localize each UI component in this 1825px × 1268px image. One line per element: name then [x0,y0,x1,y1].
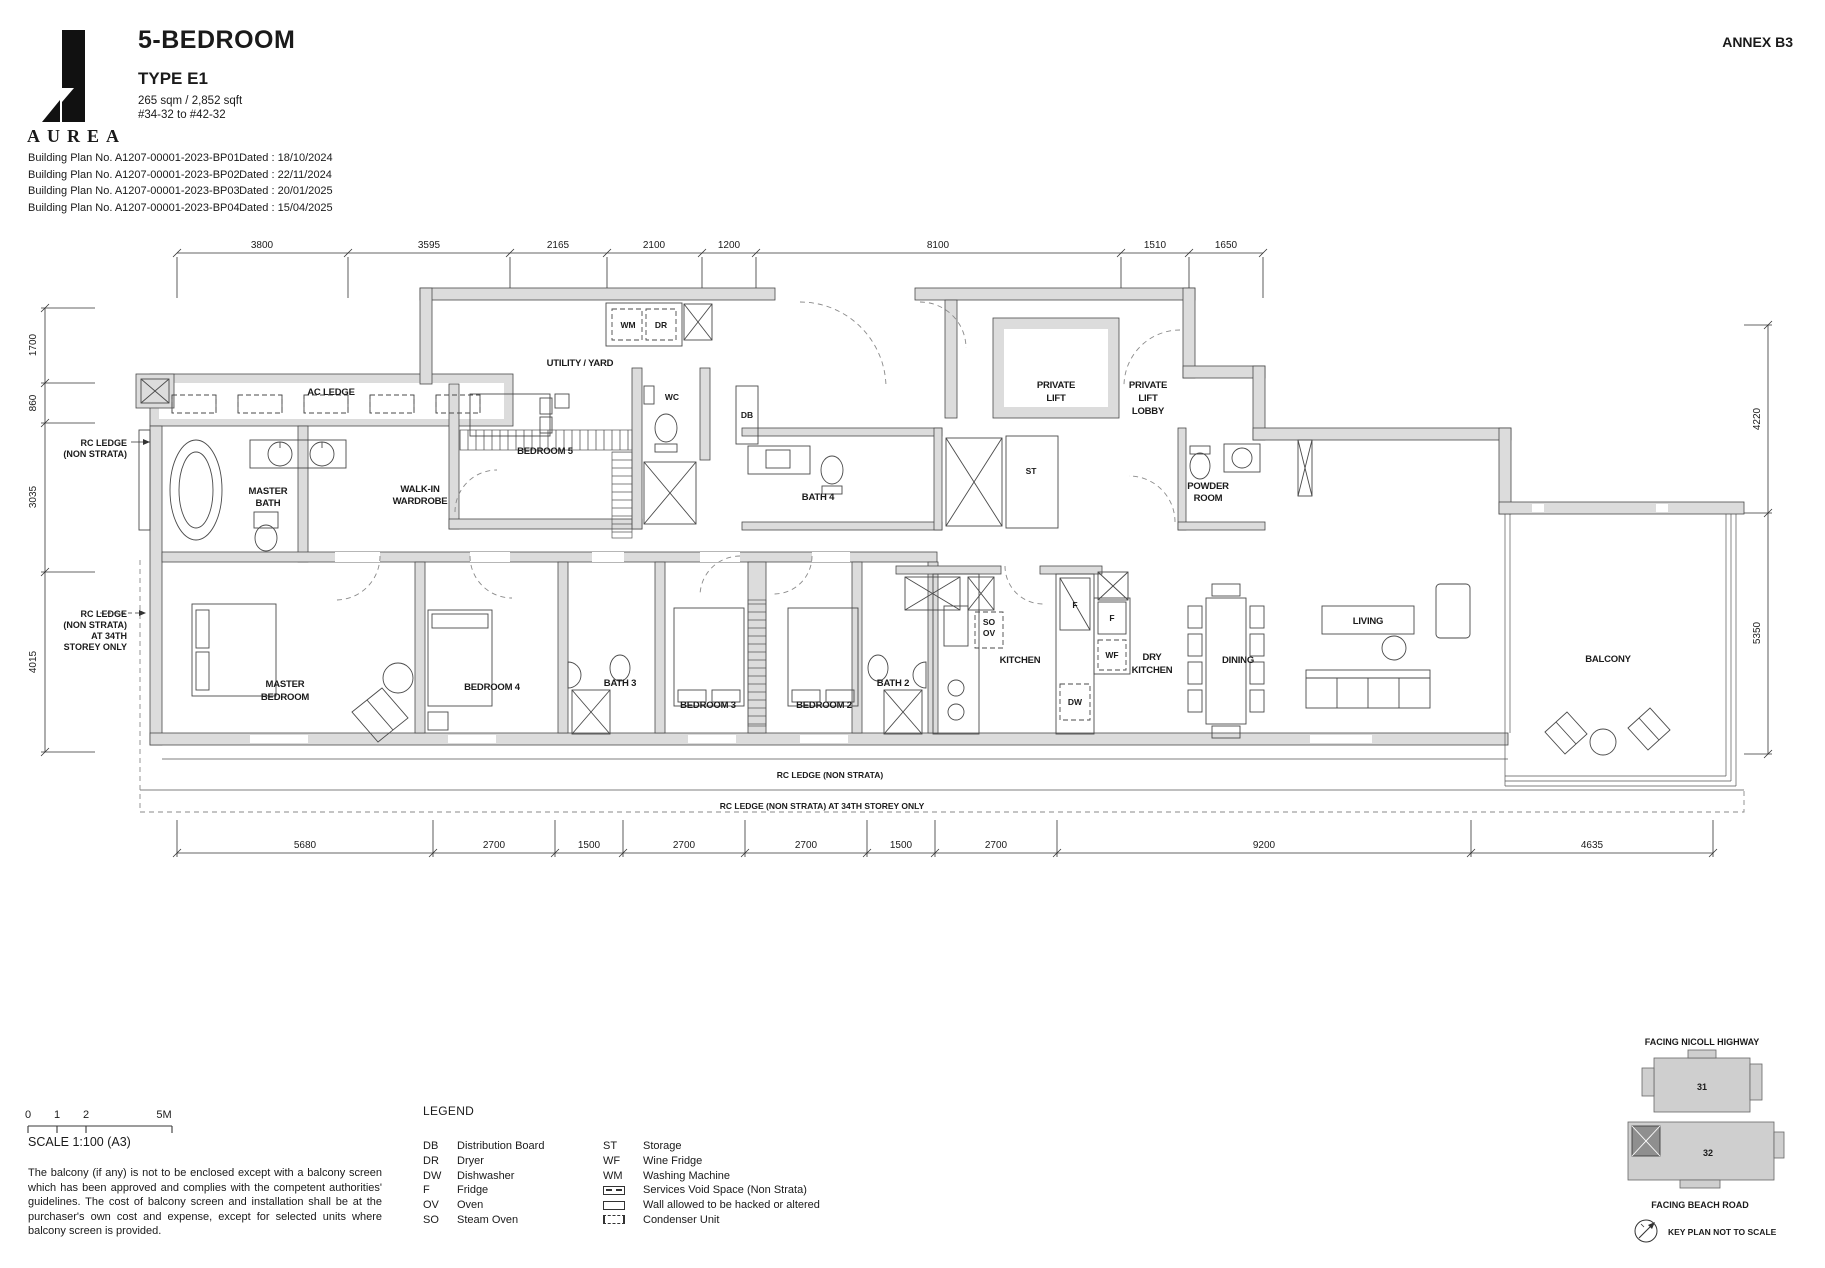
dim-bottom: 2700 [985,840,1008,851]
svg-text:(NON STRATA): (NON STRATA) [63,620,127,630]
bath2-fixtures [868,655,926,734]
scale-bar: 0 1 2 5M SCALE 1:100 (A3) [25,1109,172,1149]
dimension-lines-right: 4220 5350 [1744,321,1772,758]
kitchen-fixtures [933,574,1130,734]
dim-bottom: 2700 [673,840,696,851]
dim-top: 1510 [1144,240,1167,251]
dim-bottom: 5680 [294,840,317,851]
scale-tick: 5M [156,1109,171,1121]
keyplan-block-upper-label: 31 [1697,1082,1707,1092]
fixture-label-wf: WF [1105,650,1118,660]
room-label-private-lift: PRIVATE [1037,380,1075,391]
bedroom2-furniture [788,608,858,706]
legend-label: Services Void Space (Non Strata) [643,1184,807,1196]
room-label-master-bath: BATH [256,498,281,509]
master-bedroom-furniture [192,604,413,742]
room-label-bath4: BATH 4 [802,492,835,503]
room-label-lift-lobby: LIFT [1138,393,1158,404]
dim-top: 1650 [1215,240,1238,251]
room-label-private-lift: LIFT [1046,393,1066,404]
scale-tick: 1 [54,1109,60,1121]
legend: LEGEND DB Distribution Board ST Storage … [423,1104,820,1227]
room-label-wardrobe: WARDROBE [393,496,448,507]
legend-label: Distribution Board [457,1140,603,1152]
legend-label: Dryer [457,1155,603,1167]
legend-abbr: ST [603,1140,617,1152]
room-label-kitchen: KITCHEN [1000,655,1041,666]
condenser-unit-icon [603,1215,625,1224]
dim-top: 3800 [251,240,274,251]
svg-text:(NON STRATA): (NON STRATA) [63,449,127,459]
dim-top: 2100 [643,240,666,251]
room-label-bath3: BATH 3 [604,678,636,689]
room-label-living: LIVING [1353,616,1383,627]
living-furniture [1306,584,1470,708]
dim-left: 860 [28,394,39,411]
room-label-bedroom4: BEDROOM 4 [464,682,521,693]
room-label-dry-kitchen: KITCHEN [1132,665,1173,676]
bedroom4-furniture [428,610,492,730]
key-plan: FACING NICOLL HIGHWAY 31 32 FACING B [1628,1037,1784,1242]
dim-left: 4015 [28,650,39,673]
fixture-label-so: SO [983,617,996,627]
scale-label: SCALE 1:100 (A3) [28,1135,131,1149]
legend-row: DR Dryer WF Wine Fridge [423,1154,820,1169]
room-label-bedroom5: BEDROOM 5 [517,446,574,457]
room-label-wardrobe: WALK-IN [400,484,440,495]
svg-text:STOREY ONLY: STOREY ONLY [64,642,127,652]
hackable-wall-icon [603,1201,625,1210]
fixture-label-db: DB [741,410,753,420]
walls [136,288,1744,745]
legend-row: DB Distribution Board ST Storage [423,1139,820,1154]
legend-abbr: SO [423,1214,457,1226]
legend-abbr: DW [423,1170,457,1182]
rc-ledge-bottom-label: RC LEDGE (NON STRATA) [777,770,884,780]
scale-tick: 2 [83,1109,89,1121]
dim-left: 1700 [28,333,39,356]
legend-label: Dishwasher [457,1170,603,1182]
legend-label: Steam Oven [457,1214,603,1226]
room-label-dry-kitchen: DRY [1142,652,1162,663]
legend-title: LEGEND [423,1104,820,1118]
legend-label: Wine Fridge [643,1155,702,1167]
dim-right: 5350 [1752,621,1763,644]
floorplan-page: AUREA 5-BEDROOM TYPE E1 265 sqm / 2,852 … [0,0,1825,1268]
room-label-lift-lobby: LOBBY [1132,406,1165,417]
legend-row: F Fridge Services Void Space (Non Strata… [423,1183,820,1198]
dim-bottom: 2700 [795,840,818,851]
room-label-bedroom3: BEDROOM 3 [680,700,736,711]
storage-room [1006,436,1058,528]
keyplan-facing-top: FACING NICOLL HIGHWAY [1645,1037,1760,1047]
compass-icon [1635,1220,1657,1242]
balcony-railing [1505,514,1736,786]
legend-abbr: OV [423,1199,457,1211]
room-label-bath2: BATH 2 [877,678,909,689]
legend-row: OV Oven Wall allowed to be hacked or alt… [423,1198,820,1213]
keyplan-note: KEY PLAN NOT TO SCALE [1668,1227,1777,1237]
floorplan-drawing: 3800 3595 2165 2100 1200 8100 1510 1650 [0,0,1825,1268]
dim-top: 8100 [927,240,950,251]
fixture-label-wm: WM [620,320,635,330]
keyplan-block-lower: 32 [1628,1122,1784,1188]
keyplan-facing-bottom: FACING BEACH ROAD [1651,1200,1749,1210]
fixture-label-wc: WC [665,392,679,402]
shaft-icons [141,304,1312,610]
fixture-label-f: F [1072,600,1077,610]
room-label-utility: UTILITY / YARD [547,358,614,369]
scale-tick: 0 [25,1109,31,1121]
balcony-disclaimer: The balcony (if any) is not to be enclos… [28,1166,382,1239]
dim-top: 3595 [418,240,441,251]
legend-row: DW Dishwasher WM Washing Machine [423,1168,820,1183]
legend-label: Wall allowed to be hacked or altered [643,1199,820,1211]
fixture-label-f: F [1109,613,1114,623]
bath4-fixtures [748,446,843,494]
svg-text:RC LEDGE: RC LEDGE [80,438,127,448]
svg-text:AT 34TH: AT 34TH [91,631,127,641]
dim-bottom: 1500 [578,840,601,851]
legend-label: Storage [643,1140,682,1152]
dimension-lines-bottom: 5680 2700 1500 2700 2700 1500 2700 9200 … [173,820,1717,857]
bath3-fixtures [568,655,630,734]
fixture-label-dr: DR [655,320,667,330]
legend-abbr: F [423,1184,457,1196]
room-label-lift-lobby: PRIVATE [1129,380,1167,391]
keyplan-block-upper: 31 [1642,1050,1762,1112]
fixture-label-st: ST [1026,466,1038,476]
services-void-icon [603,1186,625,1195]
room-label-balcony: BALCONY [1585,654,1631,665]
legend-label: Oven [457,1199,603,1211]
legend-abbr: DB [423,1140,457,1152]
room-label-master-bath: MASTER [249,486,288,497]
ac-ledge-label: AC LEDGE [307,387,355,398]
legend-row: SO Steam Oven Condenser Unit [423,1212,820,1227]
dim-top: 1200 [718,240,741,251]
legend-abbr: WM [603,1170,623,1182]
legend-abbr: WF [603,1155,620,1167]
fixture-label-ov: OV [983,628,996,638]
room-label-powder: ROOM [1194,493,1223,504]
keyplan-unit-marker [1632,1126,1660,1156]
rc-ledge-left34-callout: RC LEDGE (NON STRATA) AT 34TH STOREY ONL… [63,609,146,652]
dim-top: 2165 [547,240,570,251]
keyplan-block-lower-label: 32 [1703,1148,1713,1158]
legend-label: Condenser Unit [643,1214,719,1226]
svg-text:RC LEDGE: RC LEDGE [80,609,127,619]
dim-bottom: 2700 [483,840,506,851]
dim-left: 3035 [28,485,39,508]
dim-bottom: 1500 [890,840,913,851]
dim-right: 4220 [1752,407,1763,430]
room-label-master-bedroom: BEDROOM [261,692,309,703]
balcony-furniture [1545,708,1670,755]
rc-ledge-bottom34-label: RC LEDGE (NON STRATA) AT 34TH STOREY ONL… [720,801,925,811]
rc-ledge-left-callout: RC LEDGE (NON STRATA) [63,438,150,459]
legend-label: Washing Machine [643,1170,730,1182]
dim-bottom: 9200 [1253,840,1276,851]
legend-label: Fridge [457,1184,603,1196]
legend-abbr: DR [423,1155,457,1167]
powder-room-fixtures [1190,444,1260,479]
room-label-dining: DINING [1222,655,1254,666]
room-label-powder: POWDER [1187,481,1229,492]
room-label-bedroom2: BEDROOM 2 [796,700,852,711]
dimension-lines-left: 1700 860 3035 4015 [28,304,95,756]
fixture-label-dw: DW [1068,697,1083,707]
room-label-master-bedroom: MASTER [266,679,305,690]
dim-bottom: 4635 [1581,840,1604,851]
